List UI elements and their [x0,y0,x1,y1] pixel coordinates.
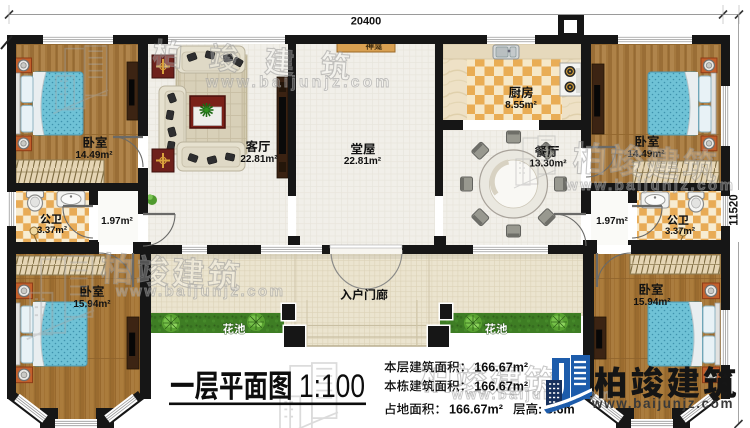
svg-text:1.97m²: 1.97m² [101,216,133,227]
svg-text:22.81m²: 22.81m² [240,154,278,165]
svg-text:1:100: 1:100 [299,368,365,404]
svg-text:11520: 11520 [729,194,741,225]
svg-text:166.67m²: 166.67m² [449,403,503,417]
svg-text:14.49m²: 14.49m² [75,150,113,161]
svg-text:www.baijunjz.com: www.baijunjz.com [205,74,393,91]
svg-text:www.baijunjz.com: www.baijunjz.com [565,177,735,194]
svg-text:3.37m²: 3.37m² [37,225,67,236]
svg-text:22.81m²: 22.81m² [344,156,382,167]
svg-text:www.baijunjz.com: www.baijunjz.com [591,396,734,411]
svg-text:166.67m²: 166.67m² [474,380,528,394]
svg-text:15.94m²: 15.94m² [633,297,671,308]
svg-text:1.97m²: 1.97m² [596,216,628,227]
svg-text:8.55m²: 8.55m² [505,100,537,111]
svg-text:3.37m²: 3.37m² [665,226,695,237]
svg-text:166.67m²: 166.67m² [474,361,528,375]
svg-text:www.baijunjz.com: www.baijunjz.com [115,283,285,300]
svg-text:20400: 20400 [351,16,382,28]
